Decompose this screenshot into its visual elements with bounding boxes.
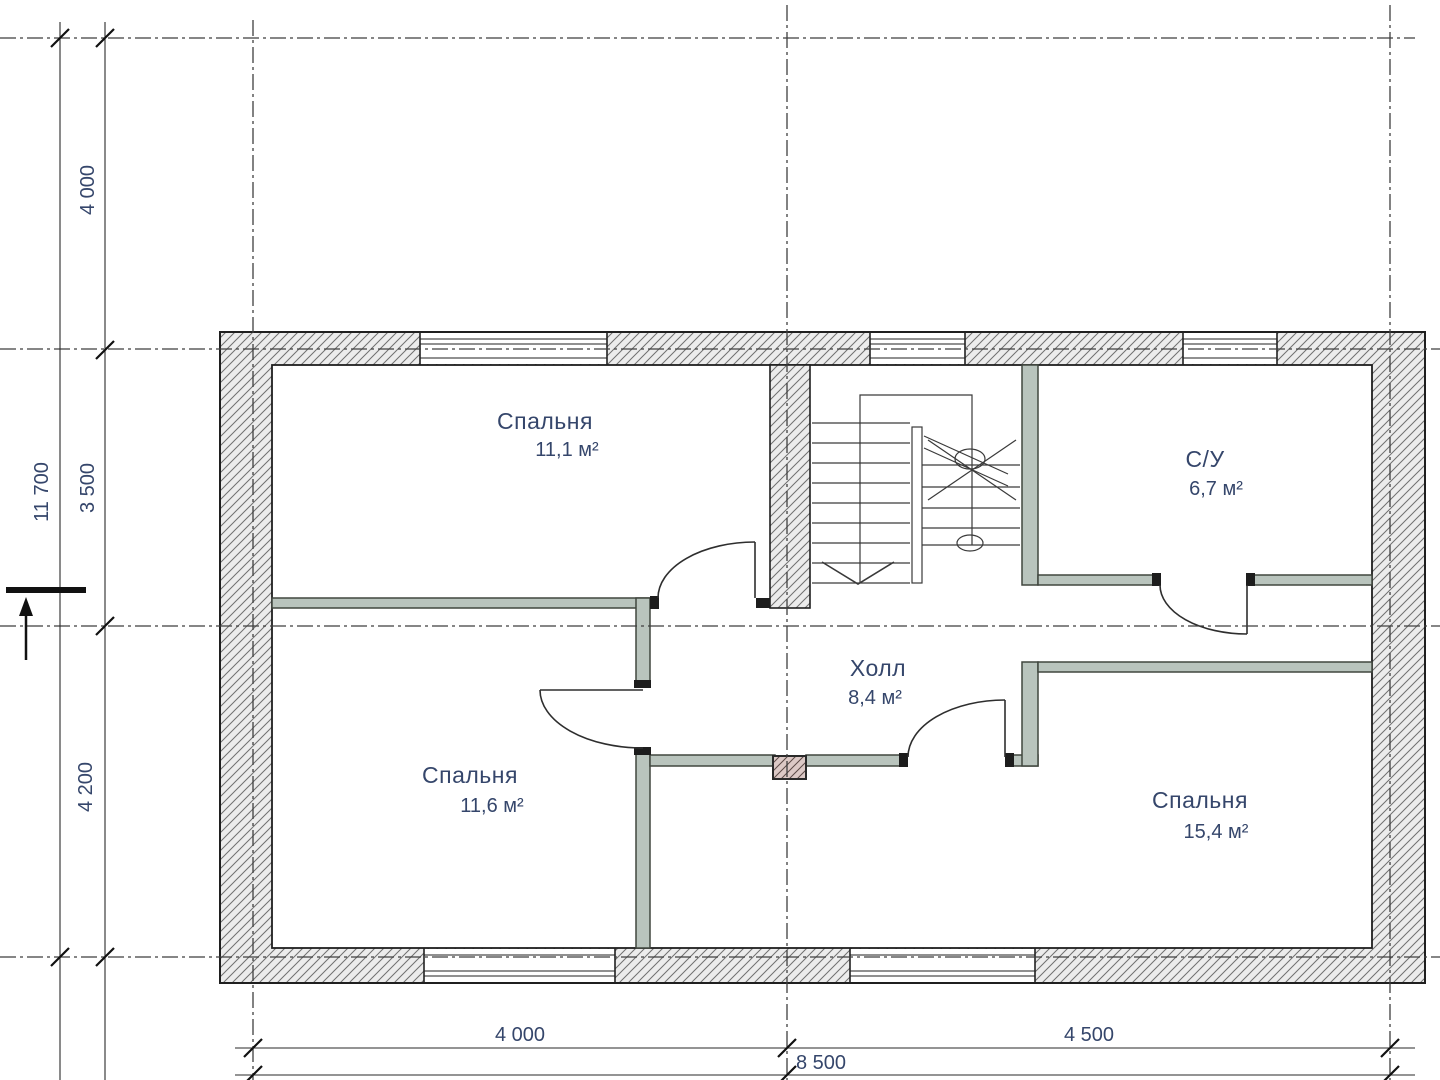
dim-left-segment-1: 4 000 xyxy=(77,165,99,215)
window-bottom-bedroom3 xyxy=(850,948,1035,983)
flue-block xyxy=(773,756,806,779)
dim-bottom-overall: 8 500 xyxy=(796,1052,846,1074)
partition-bedroom1-south xyxy=(272,598,650,608)
partition-hall-south-mid xyxy=(806,755,900,766)
door-bedroom3 xyxy=(908,700,1005,757)
dimension-bottom: 4 000 4 500 8 500 xyxy=(235,1024,1415,1080)
stair-treads-right xyxy=(922,465,1020,545)
partition-bedroom3-north xyxy=(1038,662,1372,672)
dimension-left: 4 000 3 500 4 200 11 700 xyxy=(31,22,114,1080)
dim-left-overall: 11 700 xyxy=(31,462,53,522)
outer-walls xyxy=(220,332,1425,983)
stair-divider xyxy=(912,427,922,583)
partition-bathroom-south-right xyxy=(1247,575,1372,585)
room-label-hall-area: 8,4 м² xyxy=(848,687,902,709)
room-label-bedroom3-area: 15,4 м² xyxy=(1184,821,1249,843)
room-label-bedroom2-name: Спальня xyxy=(422,762,518,788)
door-bathroom xyxy=(1160,585,1247,634)
door-bedroom1 xyxy=(658,542,755,598)
room-label-bedroom2-area: 11,6 м² xyxy=(460,795,524,817)
partition-bathroom-south-left xyxy=(1038,575,1160,585)
dim-left-segment-2: 3 500 xyxy=(77,463,99,513)
room-label-bathroom-name: С/У xyxy=(1185,446,1224,472)
dim-left-segment-3: 4 200 xyxy=(75,762,97,812)
partition-hall-south-left xyxy=(650,755,775,766)
partition-bedroom2-east-upper xyxy=(636,598,650,687)
partition-bedroom2-east-lower xyxy=(636,748,650,948)
door-bedroom2 xyxy=(540,690,643,748)
window-bottom-bedroom2 xyxy=(424,948,615,983)
dim-bottom-segment-2: 4 500 xyxy=(1064,1024,1114,1046)
partition-bedroom3-west xyxy=(1022,662,1038,766)
grid-axes xyxy=(0,5,1440,1080)
floor-plan-svg: 4 000 3 500 4 200 11 700 4 000 4 500 8 5… xyxy=(0,0,1440,1080)
section-marker xyxy=(6,587,86,660)
room-label-hall-name: Холл xyxy=(850,655,906,681)
dim-bottom-segment-1: 4 000 xyxy=(495,1024,545,1046)
room-label-bedroom1-area: 11,1 м² xyxy=(535,439,599,461)
floor-plan-canvas: 4 000 3 500 4 200 11 700 4 000 4 500 8 5… xyxy=(0,0,1440,1080)
room-label-bedroom1-name: Спальня xyxy=(497,408,593,434)
stair-railing xyxy=(924,436,1016,551)
interior-bearing-wall xyxy=(756,365,810,608)
room-label-bedroom3-name: Спальня xyxy=(1152,787,1248,813)
stair-treads-left xyxy=(812,423,910,583)
room-label-bathroom-area: 6,7 м² xyxy=(1189,478,1243,500)
stair-direction-arrow xyxy=(822,562,894,584)
partition-bathroom-west xyxy=(1022,365,1038,585)
staircase xyxy=(812,395,1020,584)
